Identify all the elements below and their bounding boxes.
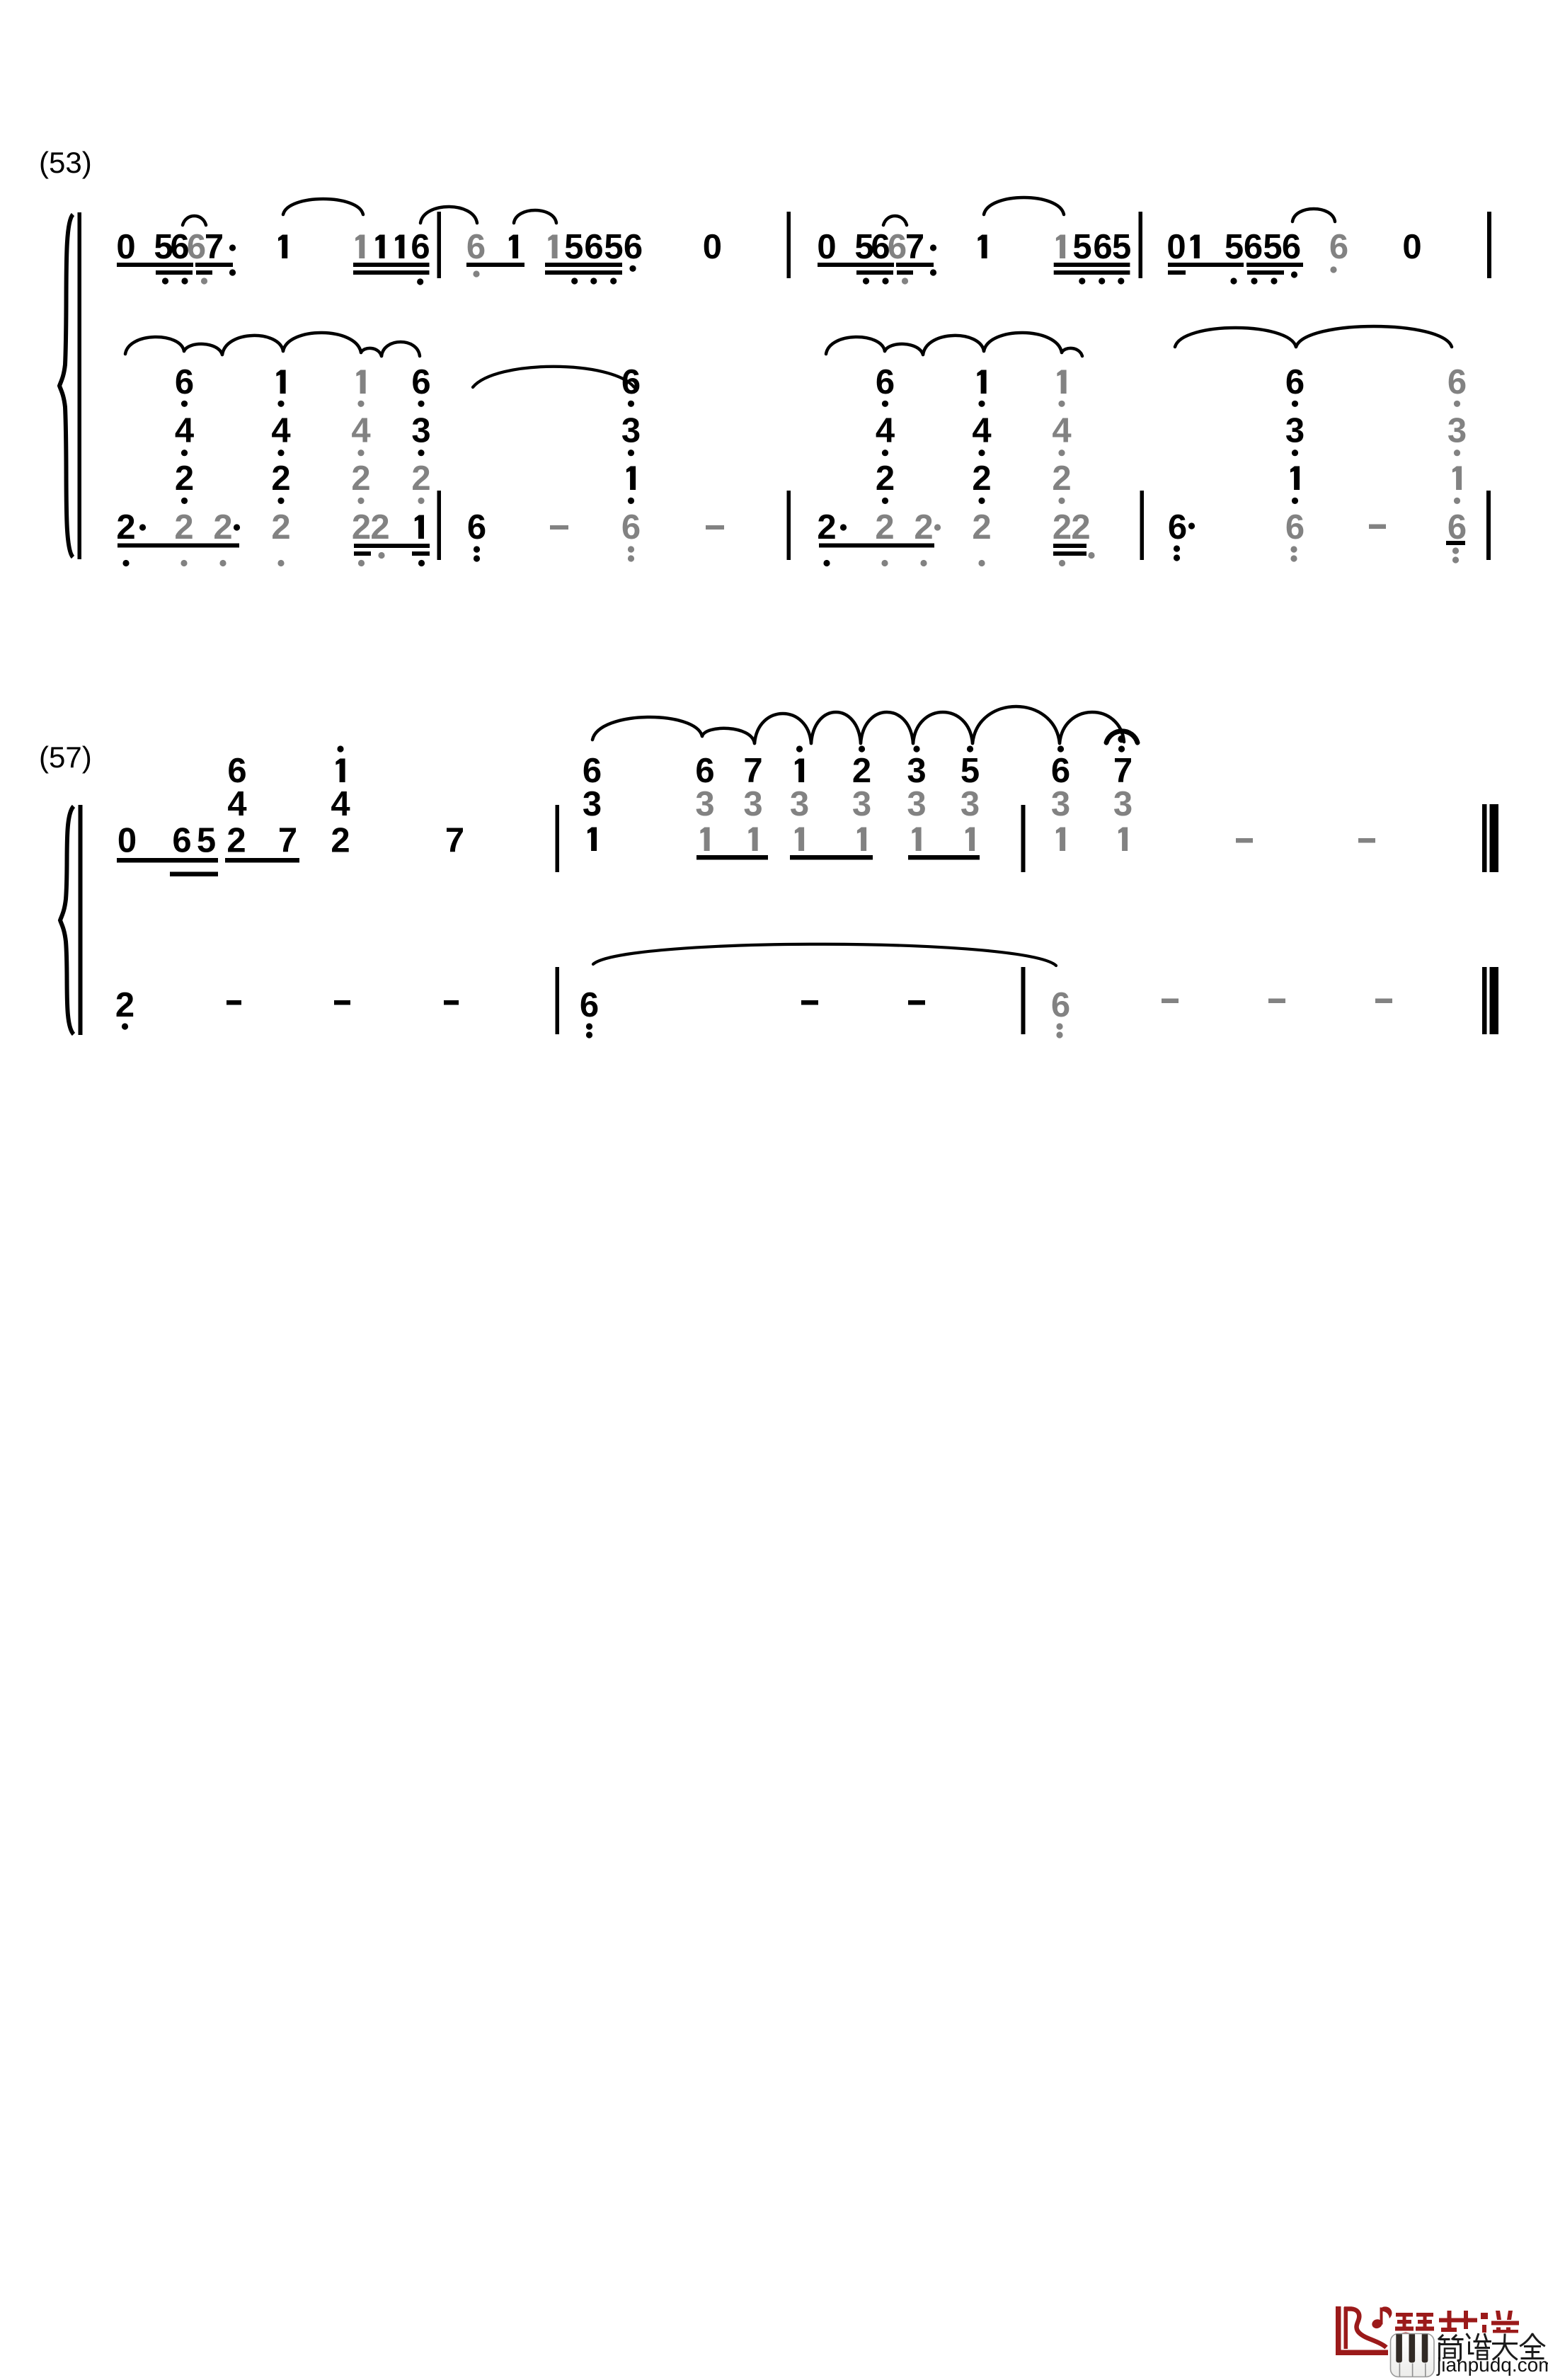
svg-text:5: 5 [604,228,623,266]
svg-text:2: 2 [175,459,194,498]
svg-text:5: 5 [961,752,980,790]
svg-text:3: 3 [743,785,762,823]
svg-text:2: 2 [213,508,232,547]
svg-text:6: 6 [621,508,641,547]
svg-text:7: 7 [743,752,762,790]
svg-text:4: 4 [271,412,290,450]
svg-text:2: 2 [331,822,350,860]
svg-text:6: 6 [227,752,246,790]
svg-text:0: 0 [117,822,137,860]
svg-text:2: 2 [271,459,290,498]
svg-text:2: 2 [227,822,246,860]
svg-text:3: 3 [621,412,641,450]
svg-text:4: 4 [175,412,194,450]
svg-text:6: 6 [583,752,602,790]
svg-text:6: 6 [187,228,206,266]
svg-text:7: 7 [278,822,297,860]
svg-text:2: 2 [271,508,290,547]
svg-text:6: 6 [584,228,603,266]
svg-text:0: 0 [116,228,135,266]
svg-text:3: 3 [695,785,714,823]
svg-text:6: 6 [1329,228,1348,266]
svg-text:6: 6 [175,363,194,401]
svg-text:4: 4 [331,785,350,823]
svg-text:3: 3 [907,785,926,823]
svg-text:2: 2 [352,508,371,547]
svg-text:2: 2 [972,508,991,547]
svg-text:6: 6 [1168,508,1187,547]
svg-text:7: 7 [445,822,464,860]
svg-text:0: 0 [1166,228,1186,266]
svg-text:7: 7 [905,228,924,266]
svg-text:2: 2 [914,508,933,547]
svg-text:3: 3 [583,785,602,823]
svg-text:3: 3 [852,785,871,823]
svg-text:6: 6 [621,363,641,401]
svg-text:5: 5 [1072,228,1091,266]
svg-text:6: 6 [411,228,430,266]
svg-text:2: 2 [852,752,871,790]
svg-text:2: 2 [817,508,836,547]
svg-text:6: 6 [1447,508,1467,547]
svg-text:6: 6 [1282,228,1301,266]
svg-text:2: 2 [875,508,894,547]
svg-text:6: 6 [580,986,599,1024]
svg-text:6: 6 [876,363,895,401]
svg-text:jianpudq.com: jianpudq.com [1436,2354,1548,2376]
svg-text:3: 3 [1051,785,1070,823]
svg-text:6: 6 [467,508,486,547]
svg-text:(57): (57) [39,740,92,774]
svg-text:5: 5 [1263,228,1282,266]
svg-text:6: 6 [1051,752,1070,790]
svg-text:5: 5 [1112,228,1131,266]
svg-text:3: 3 [790,785,809,823]
svg-text:7: 7 [1113,752,1133,790]
svg-text:4: 4 [876,412,895,450]
svg-text:4: 4 [227,785,246,823]
svg-text:5: 5 [1225,228,1244,266]
svg-text:3: 3 [1113,785,1133,823]
svg-text:6: 6 [1285,508,1305,547]
svg-text:2: 2 [411,459,430,498]
svg-text:4: 4 [1052,412,1071,450]
svg-text:6: 6 [624,228,643,266]
svg-text:3: 3 [1447,412,1467,450]
svg-text:6: 6 [466,228,486,266]
svg-text:2: 2 [351,459,370,498]
svg-text:0: 0 [1402,228,1421,266]
svg-text:6: 6 [1051,986,1070,1024]
svg-text:6: 6 [888,228,907,266]
svg-text:6: 6 [1244,228,1263,266]
svg-text:(53): (53) [39,146,92,179]
svg-text:3: 3 [907,752,926,790]
svg-text:0: 0 [703,228,722,266]
svg-text:5: 5 [197,822,216,860]
svg-text:2: 2 [1052,459,1071,498]
svg-text:4: 4 [972,412,991,450]
svg-text:2: 2 [1053,508,1072,547]
svg-text:2: 2 [370,508,389,547]
svg-text:0: 0 [817,228,836,266]
svg-text:2: 2 [1071,508,1090,547]
svg-text:3: 3 [961,785,980,823]
svg-text:4: 4 [351,412,370,450]
svg-text:6: 6 [1285,363,1305,401]
svg-text:5: 5 [564,228,583,266]
svg-text:6: 6 [1093,228,1112,266]
svg-text:2: 2 [876,459,895,498]
svg-text:6: 6 [172,822,191,860]
svg-text:7: 7 [205,228,224,266]
svg-text:2: 2 [972,459,991,498]
svg-text:3: 3 [411,412,430,450]
svg-text:6: 6 [411,363,430,401]
svg-text:3: 3 [1285,412,1305,450]
svg-text:2: 2 [115,986,134,1024]
svg-text:2: 2 [116,508,135,547]
svg-text:2: 2 [174,508,193,547]
svg-text:6: 6 [1447,363,1467,401]
svg-text:6: 6 [695,752,714,790]
